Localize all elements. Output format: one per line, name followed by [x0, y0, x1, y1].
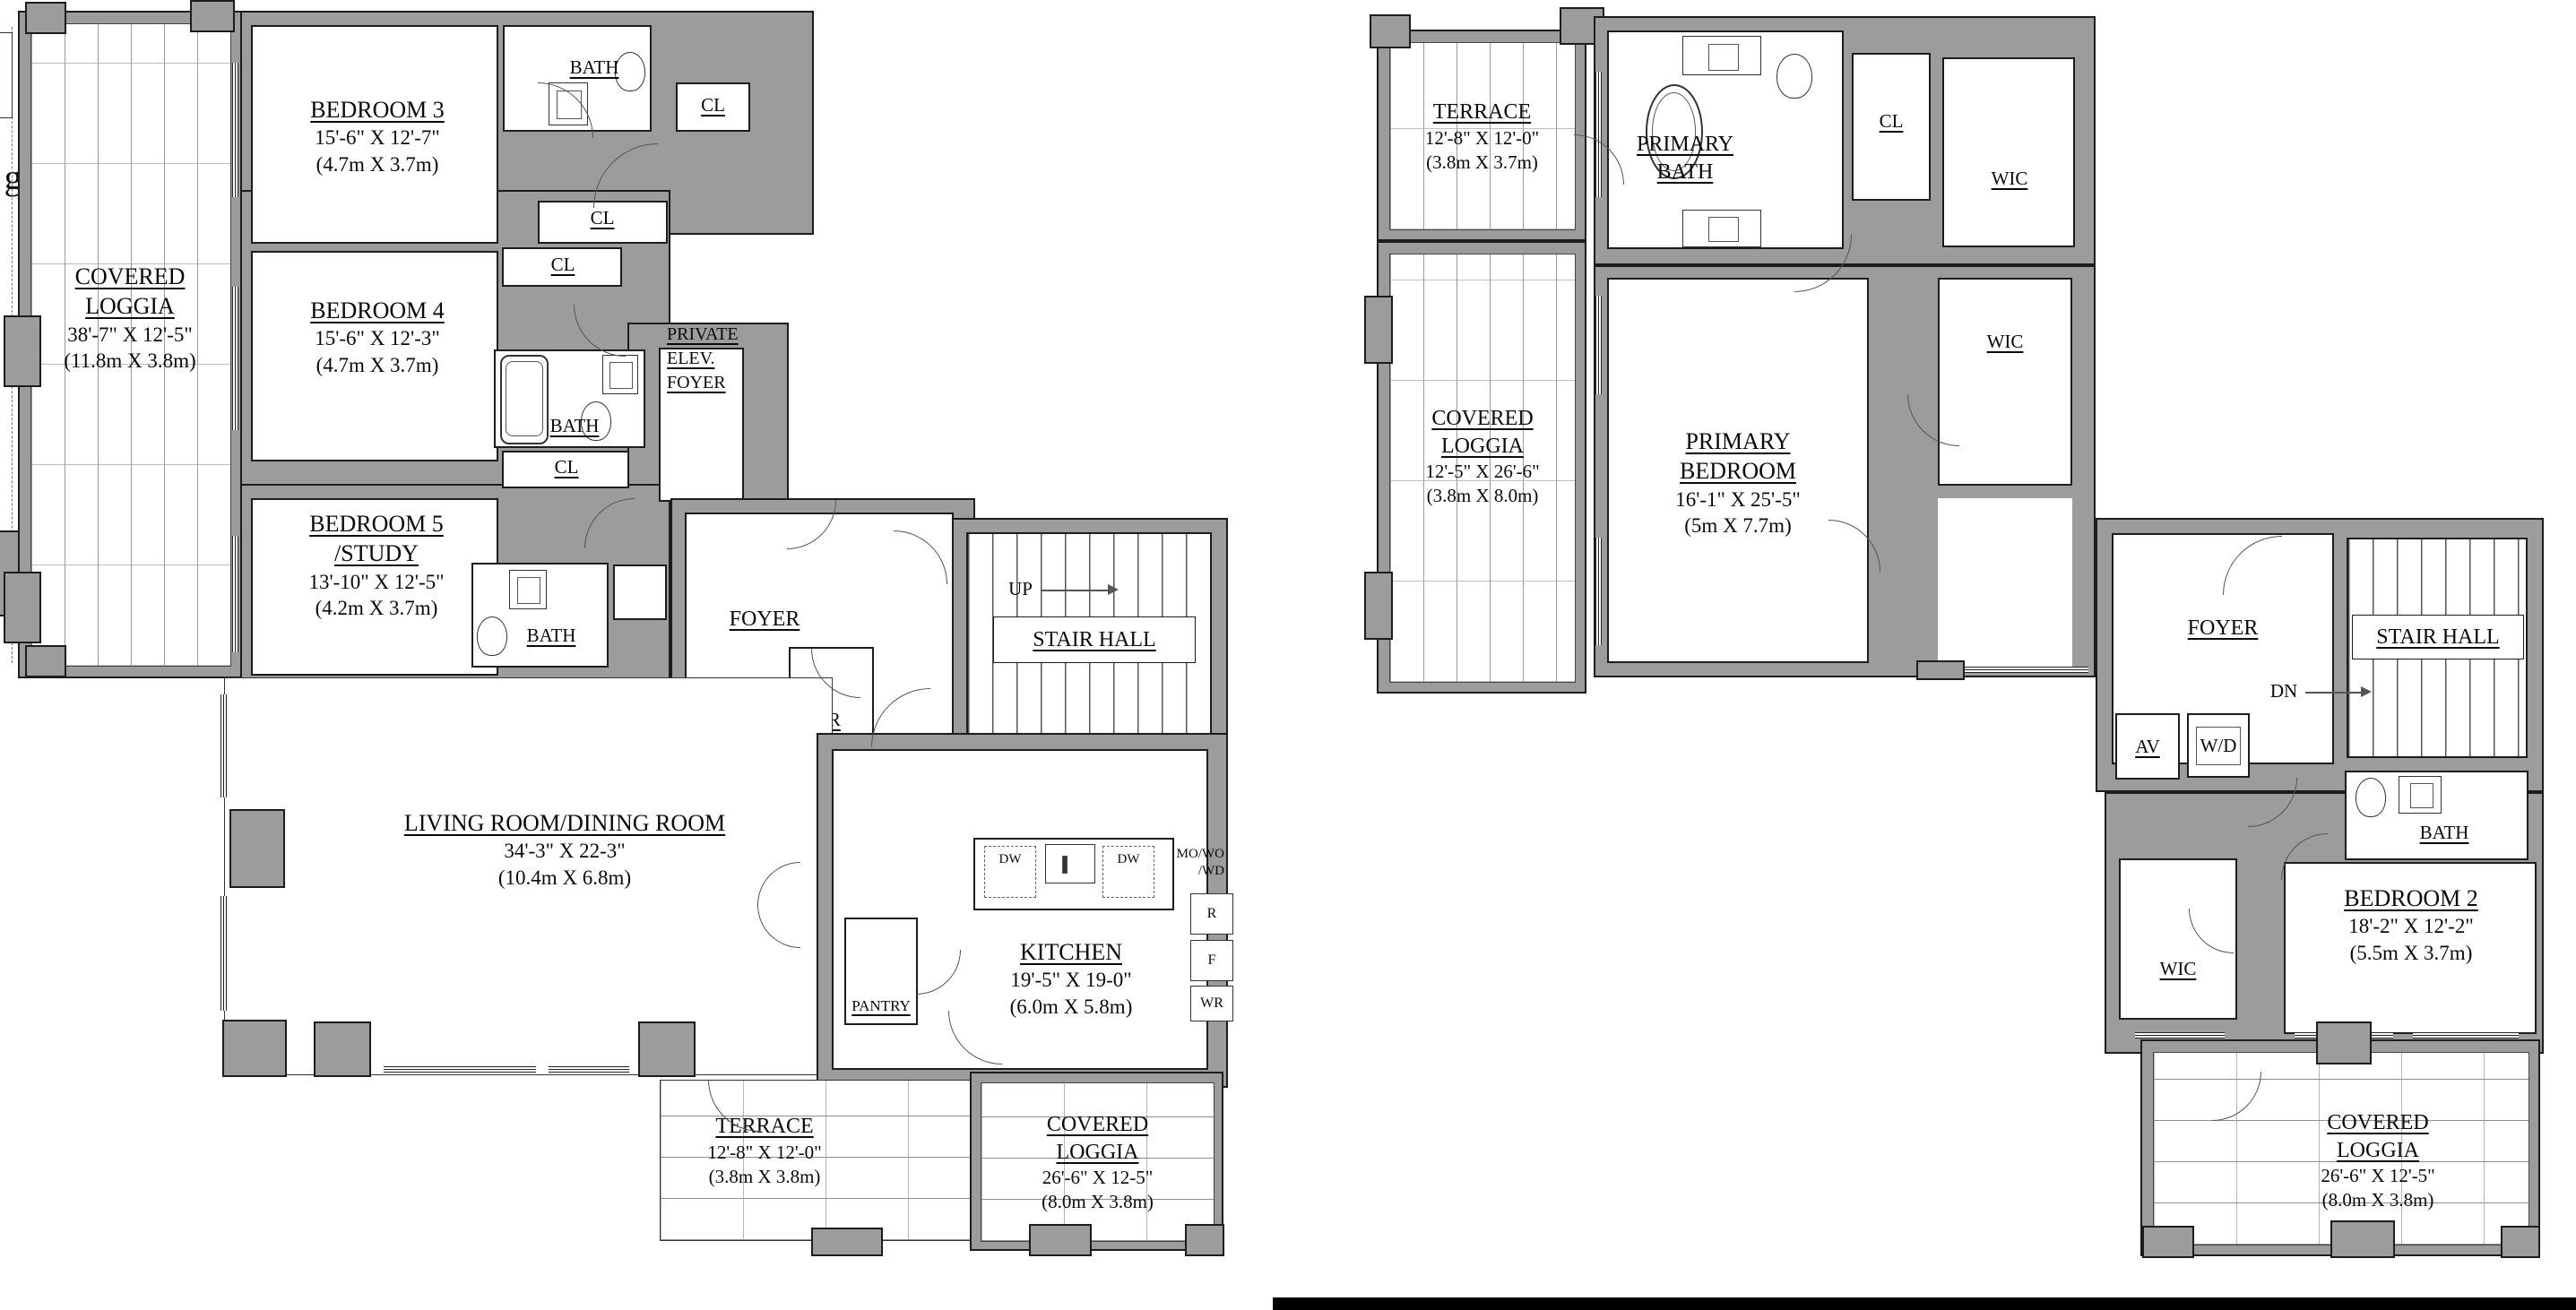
freezer-label: F	[1208, 952, 1216, 969]
room-label-terrace-upper: TERRACE 12'-8" X 12'-0" (3.8m X 3.7m)	[1395, 99, 1569, 174]
outdoor-pillar	[2142, 1226, 2194, 1258]
dn-arrow-line	[2305, 692, 2361, 694]
room-label-primary-bath: PRIMARY BATH	[1613, 131, 1757, 185]
window	[1595, 538, 1602, 645]
window	[2135, 1032, 2225, 1039]
room-label-bedroom2: BEDROOM 2 18'-2" X 12'-2" (5.5m X 3.7m)	[2287, 883, 2535, 966]
room-label-bedroom5: BEDROOM 5 /STUDY 13'-10" X 12'-5" (4.2m …	[296, 509, 457, 621]
room-av-closet: AV	[2115, 713, 2180, 780]
bottom-black-bar	[1273, 1297, 2576, 1310]
room-shower5	[613, 565, 667, 620]
room-label-foyer: FOYER	[715, 606, 814, 633]
loggia-pillar	[25, 645, 66, 677]
adjacent-plan-fragment	[0, 32, 13, 118]
room-label-primary-bedroom: PRIMARY BEDROOM 16'-1" X 25'-5" (5m X 7.…	[1635, 427, 1841, 539]
stair-hall-upper-label-box: STAIR HALL	[2352, 615, 2524, 659]
outdoor-pillar	[1185, 1224, 1224, 1256]
micro-wall-oven-label: MO/WO /WD	[1154, 846, 1224, 880]
living-pillar	[229, 809, 285, 888]
island-sink-icon	[1045, 844, 1095, 883]
sink-icon	[509, 570, 547, 609]
room-label-stair-hall: STAIR HALL	[1033, 628, 1155, 652]
loggia-pillar	[4, 315, 41, 387]
vanity-icon	[1682, 210, 1761, 247]
outdoor-pillar	[2316, 1021, 2372, 1064]
living-corner-pillar	[222, 1020, 287, 1077]
vanity-icon	[1682, 36, 1761, 75]
room-label-bedroom4: BEDROOM 4 15'-6" X 12'-3" (4.7m X 3.7m)	[256, 296, 498, 378]
room-label-closet-a: CL	[566, 206, 638, 230]
room-wic-top	[1942, 57, 2075, 247]
outdoor-pillar	[811, 1228, 883, 1256]
window	[220, 896, 227, 1011]
stair-direction-dn: DN	[2262, 679, 2305, 703]
room-label-bath4: BATH	[536, 414, 613, 438]
dishwasher-box: DW	[1102, 846, 1154, 898]
room-label-stair-hall-upper: STAIR HALL	[2376, 625, 2499, 650]
room-label-terrace-lower: TERRACE 12'-8" X 12'-0" (3.8m X 3.8m)	[670, 1113, 859, 1188]
sink-icon	[602, 355, 638, 394]
stair-hall-label-box: STAIR HALL	[993, 616, 1196, 663]
toilet-icon	[1776, 54, 1812, 99]
toilet-icon	[2356, 778, 2386, 817]
room-label-closet-upper: CL	[1854, 109, 1929, 134]
window	[549, 1066, 629, 1073]
sink-icon	[2399, 776, 2442, 814]
room-label-foyer-upper: FOYER	[2169, 615, 2277, 642]
refrigerator-label: R	[1207, 906, 1217, 922]
up-arrow-head	[1108, 584, 1119, 595]
outdoor-pillar	[2330, 1220, 2395, 1258]
room-label-pantry: PANTRY	[850, 996, 912, 1016]
hall-upper	[1938, 498, 2072, 668]
up-arrow-line	[1042, 590, 1108, 591]
room-wic-mid	[1938, 278, 2072, 486]
wine-refrigerator-label: WR	[1200, 995, 1223, 1012]
room-label-bath3: BATH	[556, 56, 633, 80]
living-pillar	[314, 1021, 371, 1077]
room-label-covered-loggia-west: COVERED LOGGIA 38'-7" X 12'-5" (11.8m X …	[63, 262, 197, 374]
living-pillar	[638, 1021, 696, 1077]
room-label-wic-lower-right: WIC	[2122, 957, 2234, 981]
room-label-bath-upper: BATH	[2404, 821, 2485, 845]
dn-arrow-head	[2361, 686, 2372, 697]
terrace-pillar	[1370, 14, 1411, 48]
toilet-icon	[477, 616, 507, 656]
window	[232, 287, 238, 430]
window	[2413, 1032, 2519, 1039]
room-label-closet-c: CL	[531, 455, 602, 479]
stair-direction-up: UP	[1000, 577, 1041, 601]
room-label-living-dining: LIVING ROOM/DINING ROOM 34'-3" X 22-3" (…	[376, 808, 753, 891]
dishwasher-box: DW	[984, 846, 1036, 898]
loggia-pillar	[4, 572, 41, 643]
window-mullion-pillar	[1916, 660, 1965, 680]
room-label-wic-mid: WIC	[1941, 330, 2069, 354]
room-label-closet-top: CL	[684, 93, 742, 117]
outdoor-pillar	[2501, 1226, 2540, 1258]
room-label-wic-top: WIC	[1947, 167, 2072, 191]
room-label-av: AV	[2135, 736, 2160, 758]
room-label-washer-dryer: W/D	[2196, 727, 2242, 765]
loggia-pillar	[1364, 296, 1393, 364]
loggia-pillar	[25, 2, 66, 34]
loggia-pillar	[190, 0, 235, 32]
room-label-kitchen: KITCHEN 19'-5" X 19-0" (6.0m X 5.8m)	[964, 937, 1179, 1020]
room-label-bath5: BATH	[513, 624, 590, 648]
room-label-private-elev-foyer: PRIVATE ELEV. FOYER	[667, 323, 773, 395]
window	[232, 63, 238, 197]
refrigerator-box: R	[1190, 893, 1233, 935]
dishwasher-label: DW	[1118, 852, 1140, 867]
dishwasher-label: DW	[999, 852, 1022, 867]
room-washer-dryer: W/D	[2187, 713, 2250, 778]
room-label-covered-loggia-west-upper: COVERED LOGGIA 12'-5" X 26'-6" (3.8m X 8…	[1411, 405, 1554, 508]
outdoor-pillar	[1029, 1224, 1092, 1256]
window	[1595, 296, 1602, 394]
freezer-box: F	[1190, 940, 1233, 981]
window	[384, 1066, 536, 1073]
window	[220, 694, 227, 797]
room-label-closet-b: CL	[527, 253, 599, 277]
window	[232, 536, 238, 652]
floorplan-page: gia COVERED LOGGIA 38'-7" X 12'-5" (11.8…	[0, 0, 2576, 1310]
room-label-covered-loggia-south-upper: COVERED LOGGIA 26'-6" X 12'-5" (8.0m X 3…	[2284, 1109, 2472, 1212]
wine-refrigerator-box: WR	[1190, 986, 1233, 1021]
room-label-covered-loggia-south: COVERED LOGGIA 26'-6" X 12-5" (8.0m X 3.…	[1006, 1111, 1189, 1214]
room-label-bedroom3: BEDROOM 3 15'-6" X 12'-7" (4.7m X 3.7m)	[256, 95, 498, 177]
loggia-pillar	[1364, 572, 1393, 640]
